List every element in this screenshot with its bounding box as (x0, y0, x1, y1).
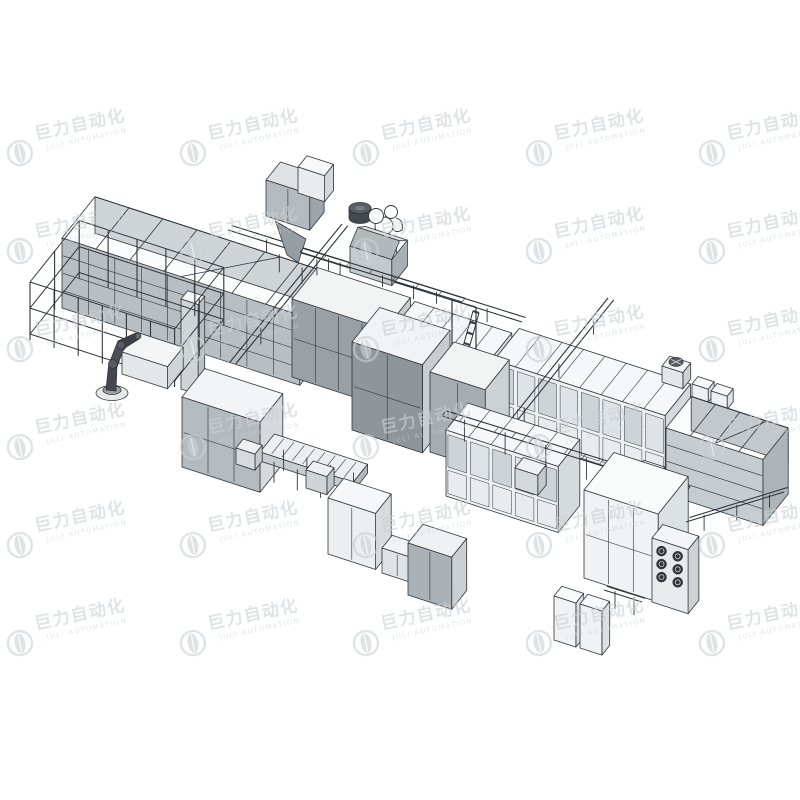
screenshot-root: 巨力自动化JULI AUTOMATION巨力自动化JULI AUTOMATION… (0, 0, 800, 800)
machinery (30, 156, 788, 655)
production-line-illustration (0, 0, 800, 800)
